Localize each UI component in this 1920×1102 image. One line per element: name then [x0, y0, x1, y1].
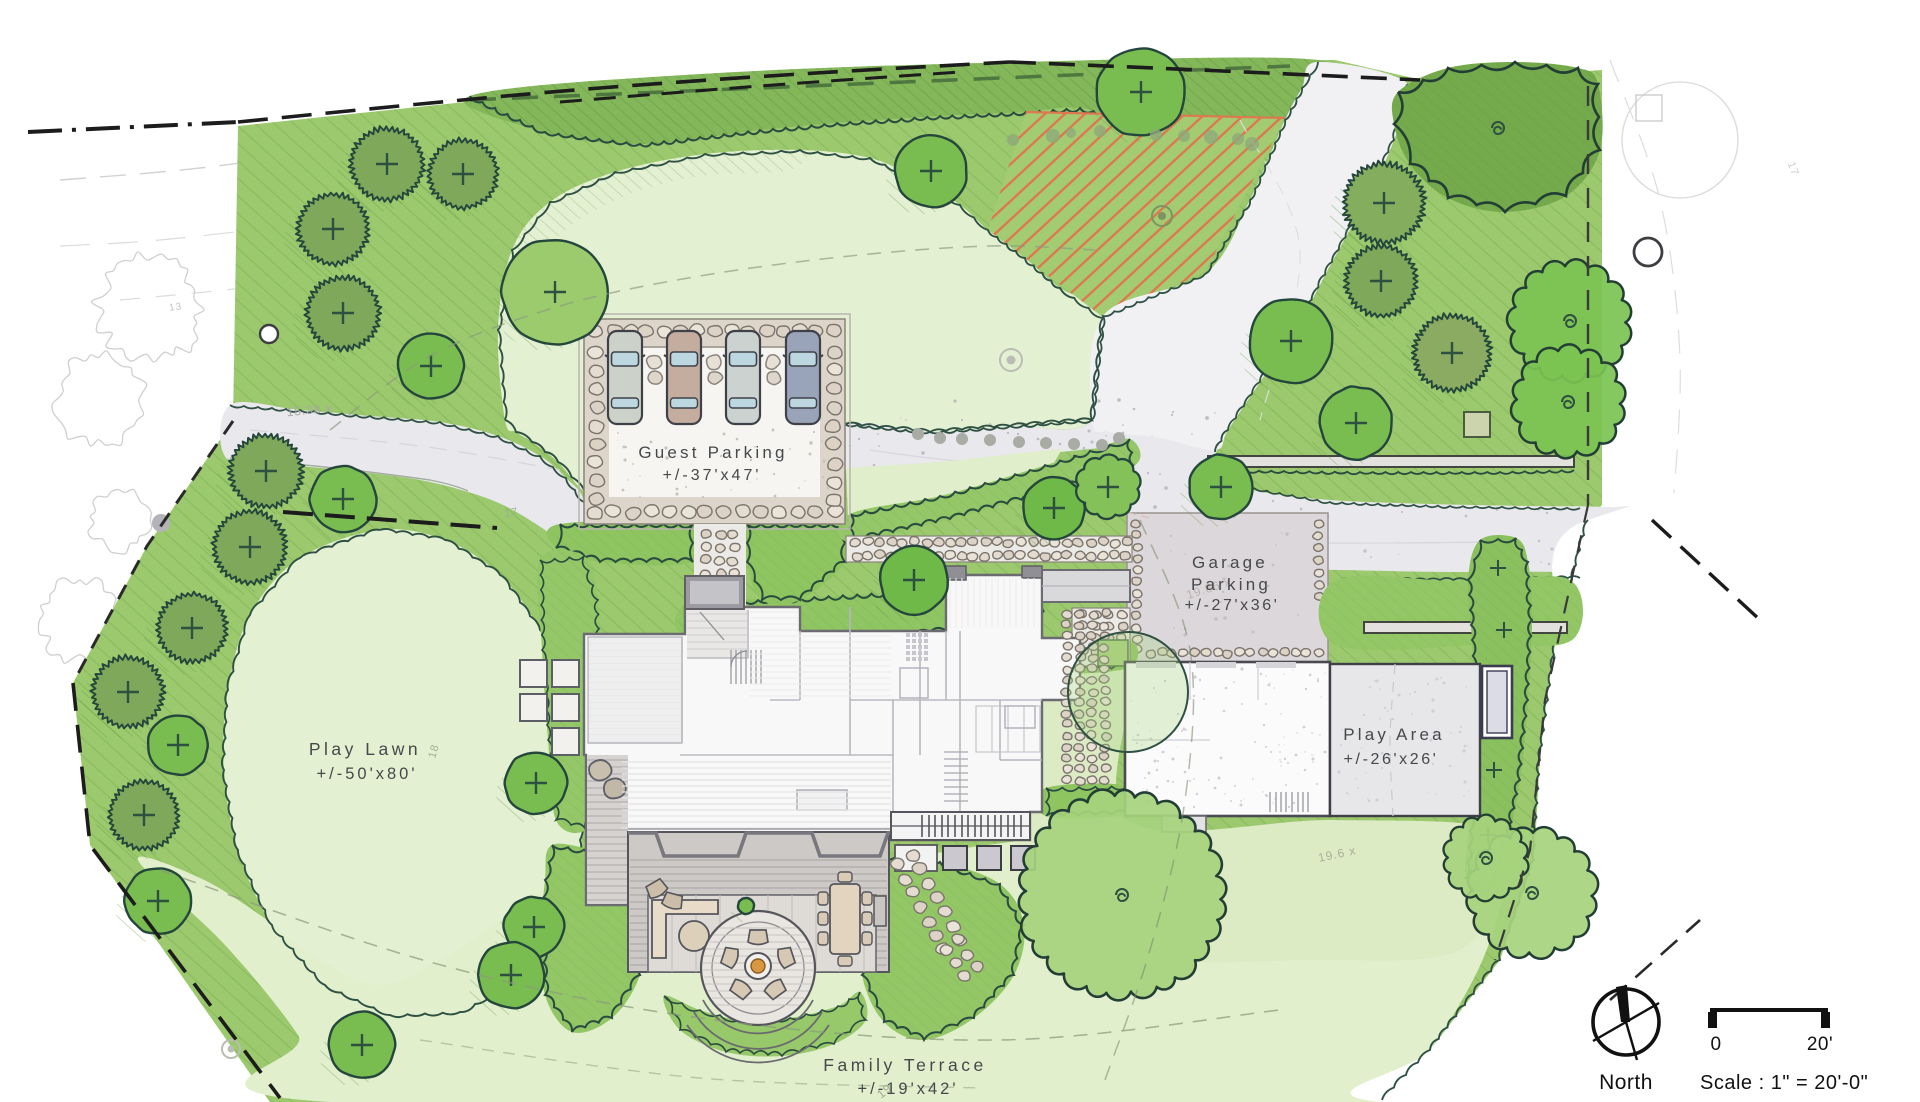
- svg-text:Play Area: Play Area: [1343, 725, 1445, 744]
- svg-text:20': 20': [1807, 1034, 1833, 1055]
- svg-text:+/-37'x47': +/-37'x47': [663, 467, 762, 484]
- svg-text:17: 17: [503, 506, 519, 520]
- svg-text:0: 0: [1710, 1034, 1721, 1055]
- svg-text:+/-19'x42': +/-19'x42': [858, 1080, 959, 1098]
- svg-text:North: North: [1599, 1071, 1653, 1094]
- svg-text:Scale : 1" = 20'-0": Scale : 1" = 20'-0": [1700, 1072, 1868, 1094]
- svg-text:Parking: Parking: [1191, 575, 1271, 594]
- svg-text:+/-50'x80': +/-50'x80': [317, 765, 418, 783]
- svg-text:Garage: Garage: [1192, 553, 1268, 572]
- svg-text:Guest Parking: Guest Parking: [638, 443, 787, 462]
- svg-text:+/-27'x36': +/-27'x36': [1185, 597, 1280, 614]
- svg-text:Play Lawn: Play Lawn: [309, 739, 421, 759]
- svg-text:+/-26'x26': +/-26'x26': [1344, 751, 1439, 768]
- svg-text:Family Terrace: Family Terrace: [823, 1055, 986, 1075]
